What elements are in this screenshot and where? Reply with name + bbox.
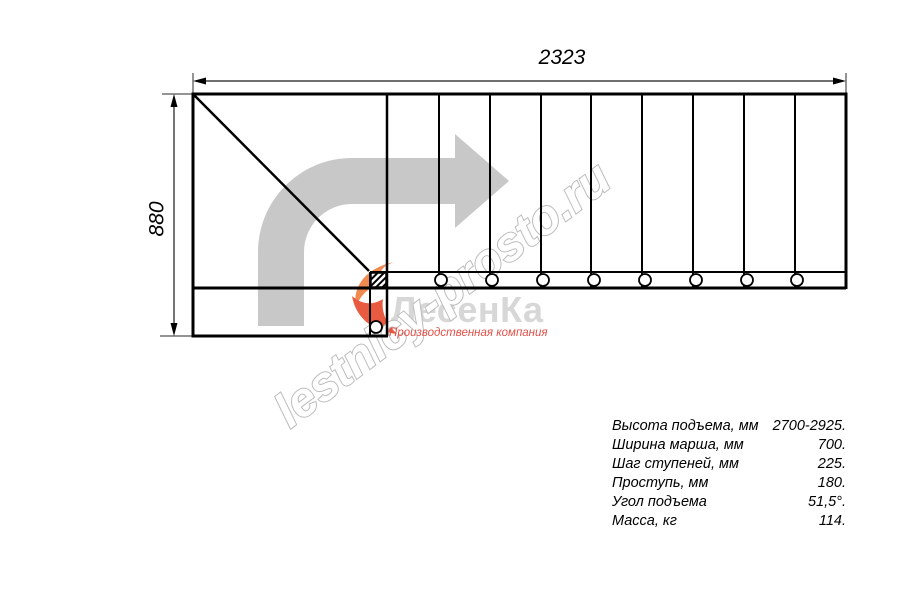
spec-row: Высота подъема, мм 2700-2925. (612, 417, 846, 436)
spec-value: 180. (818, 474, 846, 493)
spec-value: 114. (819, 512, 846, 531)
spec-row: Угол подъема 51,5°. (612, 493, 846, 512)
spec-label: Масса, кг (612, 512, 677, 531)
annotations: 2323 880 Высота подъема, мм 2700-2925. Ш… (0, 0, 900, 600)
spec-row: Проступь, мм 180. (612, 474, 846, 493)
stair-plan-page: ЛесенКа lestnicy-prosto.ru Производствен… (0, 0, 900, 600)
spec-row: Шаг ступеней, мм 225. (612, 455, 846, 474)
spec-label: Шаг ступеней, мм (612, 455, 739, 474)
spec-label: Угол подъема (612, 493, 707, 512)
spec-value: 700. (818, 436, 846, 455)
spec-row: Масса, кг 114. (612, 512, 846, 531)
spec-table: Высота подъема, мм 2700-2925. Ширина мар… (612, 417, 846, 530)
spec-row: Ширина марша, мм 700. (612, 436, 846, 455)
spec-value: 2700-2925. (773, 417, 846, 436)
spec-label: Проступь, мм (612, 474, 708, 493)
dimension-height-label: 880 (147, 201, 168, 236)
spec-label: Высота подъема, мм (612, 417, 759, 436)
spec-value: 51,5°. (808, 493, 846, 512)
spec-value: 225. (818, 455, 846, 474)
spec-label: Ширина марша, мм (612, 436, 744, 455)
dimension-width-label: 2323 (500, 47, 624, 68)
